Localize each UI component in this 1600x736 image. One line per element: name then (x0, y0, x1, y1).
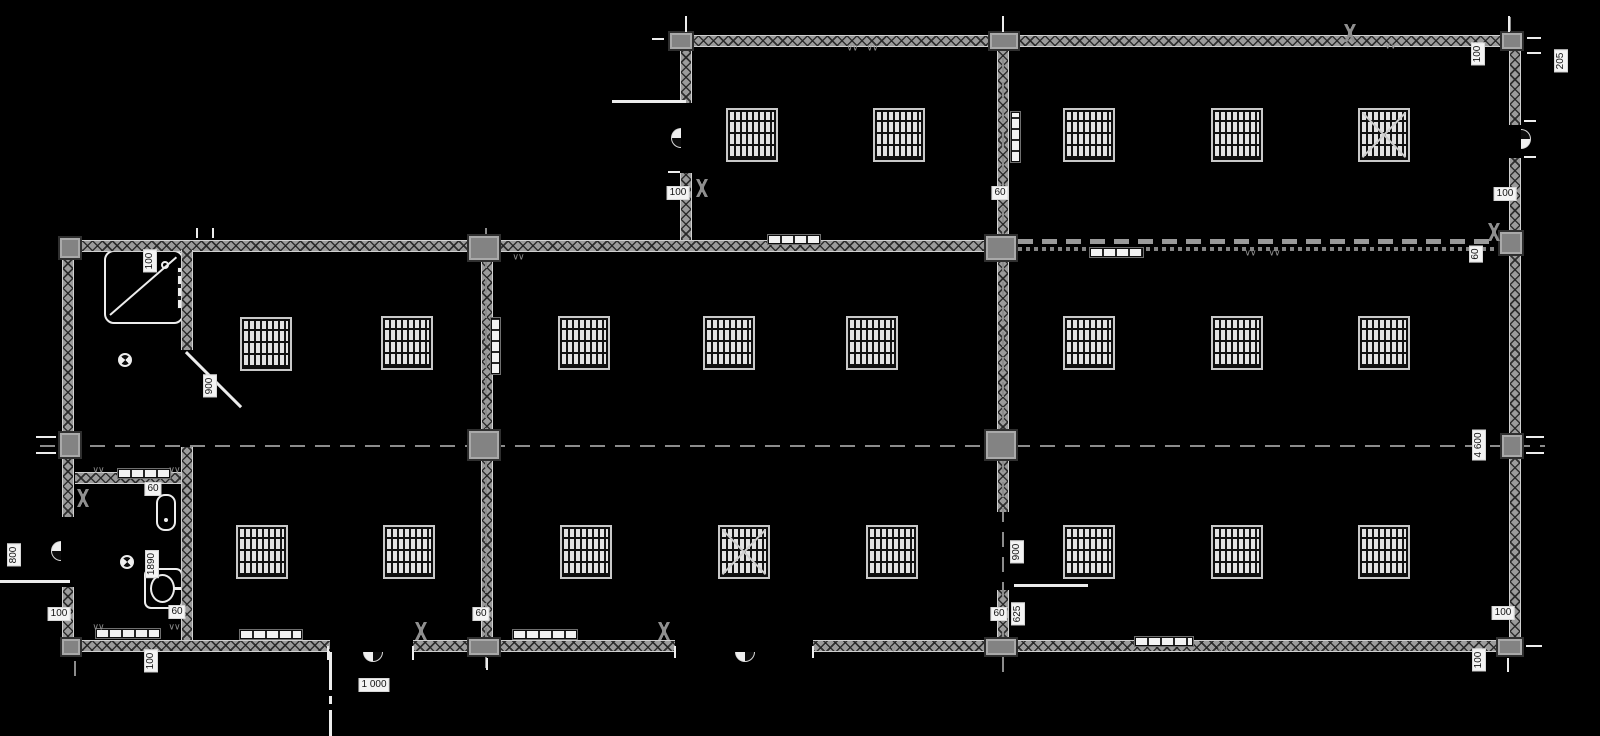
dimension-label: 100 (48, 607, 71, 621)
wall-segment (1509, 47, 1521, 125)
column (58, 236, 82, 260)
column (984, 234, 1018, 262)
dimension-label: 100 (1494, 187, 1517, 201)
dimension-tick (196, 228, 198, 238)
dimension-tick (1527, 52, 1541, 54)
dimension-tick (1524, 156, 1536, 158)
column (988, 31, 1020, 51)
dimension-tick (1002, 16, 1004, 32)
dimension-label: 900 (203, 375, 217, 398)
window-symbol (848, 318, 896, 368)
dimension-label: 60 (472, 607, 489, 621)
dimension-tick (486, 658, 488, 670)
break-mark: ∨∨ (92, 466, 103, 475)
shower-drain-icon (161, 261, 169, 269)
break-mark: ∨∨ (1384, 42, 1395, 51)
dimension-label: 60 (991, 186, 1008, 200)
dimension-tick (412, 646, 414, 660)
window-symbol (705, 318, 753, 368)
door-swing-arc (363, 652, 383, 662)
dimension-tick (1526, 452, 1544, 454)
door-leaf (329, 710, 332, 736)
vent-grille (240, 630, 302, 639)
door-swing-arc (1521, 129, 1531, 149)
column (1500, 433, 1524, 459)
window-symbol (560, 318, 608, 368)
dimension-tick (1507, 658, 1509, 672)
dimension-label: 100 (1472, 649, 1486, 672)
window-symbol (1065, 110, 1113, 160)
break-mark: ∨∨ (1268, 249, 1279, 258)
dimension-label: 100 (143, 250, 157, 273)
vent-grille (768, 235, 820, 244)
dimension-tick (668, 100, 680, 102)
toilet-flush-dot (164, 518, 168, 522)
break-mark: ∨∨ (846, 44, 857, 53)
dimension-tick (674, 646, 676, 658)
door-swing-arc (671, 128, 681, 148)
door-swing-mark (652, 622, 676, 640)
dimension-tick (685, 16, 687, 32)
dimension-label: 60 (990, 607, 1007, 621)
door-leaf (329, 652, 332, 690)
break-mark: ∨∨ (866, 44, 877, 53)
window-symbol (562, 527, 610, 577)
door-swing-arc (51, 541, 61, 561)
dimension-tick (36, 452, 56, 454)
door-swing-mark (1338, 24, 1362, 42)
door-leaf (329, 696, 332, 704)
dimension-tick (668, 171, 680, 173)
dimension-tick (812, 646, 814, 658)
column (984, 429, 1018, 461)
dimension-label: 100 (1471, 43, 1485, 66)
wall-segment (62, 240, 74, 517)
vent-grille (96, 629, 160, 638)
dimension-label: 900 (1010, 541, 1024, 564)
dimension-label: 4 600 (1472, 429, 1486, 460)
window-symbol (868, 527, 916, 577)
window-symbol-crossed (720, 527, 768, 577)
window-symbol (1360, 527, 1408, 577)
dimension-label: 60 (144, 482, 161, 496)
dimension-label: 100 (144, 650, 158, 673)
wall-segment (62, 240, 994, 252)
dimension-tick (1526, 436, 1544, 438)
window-symbol (385, 527, 433, 577)
dimension-label: 60 (168, 605, 185, 619)
column (467, 234, 501, 262)
vent-grille (513, 630, 577, 639)
dimension-label: 100 (667, 186, 690, 200)
door-swing-mark (71, 489, 95, 507)
dimension-label: 625 (1011, 603, 1025, 626)
column (668, 31, 694, 51)
break-mark: ∨∨ (168, 623, 179, 632)
vent-grille (1135, 637, 1193, 646)
dimension-label: 1 000 (358, 678, 389, 692)
door-swing-mark (409, 622, 433, 640)
column (1496, 637, 1524, 657)
window-symbol (1213, 527, 1261, 577)
vent-grille (1090, 248, 1143, 257)
dimension-label: 100 (1492, 606, 1515, 620)
column (467, 429, 501, 461)
door-swing-arc (735, 652, 755, 662)
column (60, 637, 82, 657)
axis-line (1002, 18, 1004, 672)
door-swing-mark (690, 179, 714, 197)
floor-plan-canvas: ∨∨∨∨∨∨∨∨∨∨∨∨∨∨∨∨∨∨∨∨∨∨∨∨1006010010020510… (0, 0, 1600, 736)
column (1500, 31, 1524, 51)
break-mark: ∨∨ (1244, 249, 1255, 258)
vent-grille (1011, 112, 1020, 162)
floor-drain-icon (120, 555, 134, 569)
dimension-tick (652, 38, 664, 40)
wall-segment (62, 640, 330, 652)
dimension-tick (36, 436, 56, 438)
dimension-label: 1890 (145, 550, 159, 578)
break-mark: ∨∨ (884, 645, 895, 654)
dimension-tick (1524, 120, 1536, 122)
column (58, 431, 82, 459)
window-symbol (728, 110, 776, 160)
dimension-tick (327, 646, 329, 660)
break-mark: ∨∨ (92, 623, 103, 632)
door-swing-mark (1482, 223, 1506, 241)
window-symbol (238, 527, 286, 577)
sink-bowl (150, 574, 175, 603)
dimension-tick (1527, 37, 1541, 39)
window-symbol (1065, 318, 1113, 368)
window-symbol-crossed (1360, 110, 1408, 160)
column (467, 637, 501, 657)
window-symbol (875, 110, 923, 160)
dimension-label: 800 (7, 544, 21, 567)
break-mark: ∨∨ (512, 253, 523, 262)
break-mark: ∨∨ (168, 466, 179, 475)
dimension-label: 60 (1469, 245, 1483, 262)
window-symbol (1213, 110, 1261, 160)
vent-grille (118, 469, 170, 478)
door-leaf (1014, 584, 1088, 587)
window-symbol (1213, 318, 1261, 368)
toilet (156, 494, 176, 531)
wall-segment (413, 640, 675, 652)
window-symbol (1065, 527, 1113, 577)
wall-segment (181, 250, 193, 350)
vent-grille (491, 318, 500, 374)
door-leaf (0, 580, 70, 583)
window-symbol (1360, 318, 1408, 368)
dimension-tick (212, 228, 214, 238)
dimension-tick (1526, 645, 1542, 647)
window-symbol (242, 319, 290, 369)
window-symbol (383, 318, 431, 368)
axis-line (40, 445, 1545, 447)
dimension-tick (1508, 16, 1510, 32)
break-mark: ∨∨ (1216, 645, 1227, 654)
column (984, 637, 1018, 657)
floor-drain-icon (118, 353, 132, 367)
dimension-label: 205 (1554, 50, 1568, 73)
